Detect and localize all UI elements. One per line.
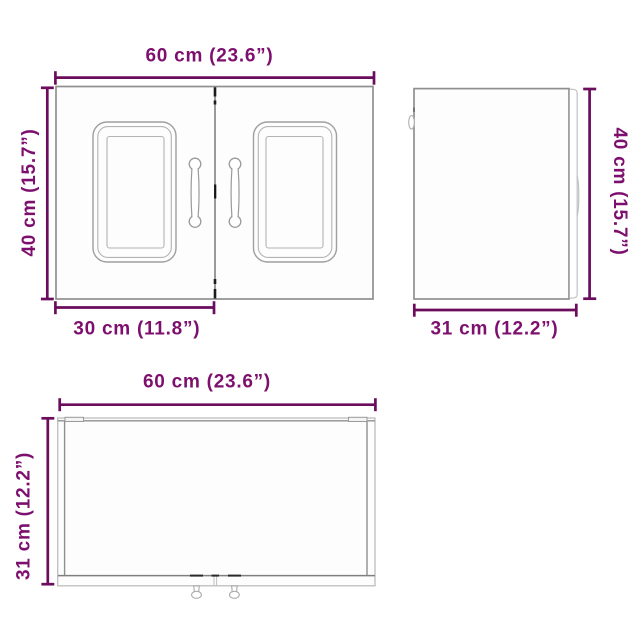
svg-text:40 cm (15.7”): 40 cm (15.7”) (609, 127, 630, 255)
svg-text:31 cm (12.2”): 31 cm (12.2”) (430, 319, 558, 340)
svg-text:40 cm (15.7”): 40 cm (15.7”) (19, 128, 40, 256)
svg-text:60 cm (23.6”): 60 cm (23.6”) (145, 46, 273, 67)
svg-text:60 cm (23.6”): 60 cm (23.6”) (143, 372, 271, 393)
svg-text:30 cm (11.8”): 30 cm (11.8”) (73, 319, 200, 340)
svg-text:31 cm (12.2”): 31 cm (12.2”) (13, 452, 34, 580)
